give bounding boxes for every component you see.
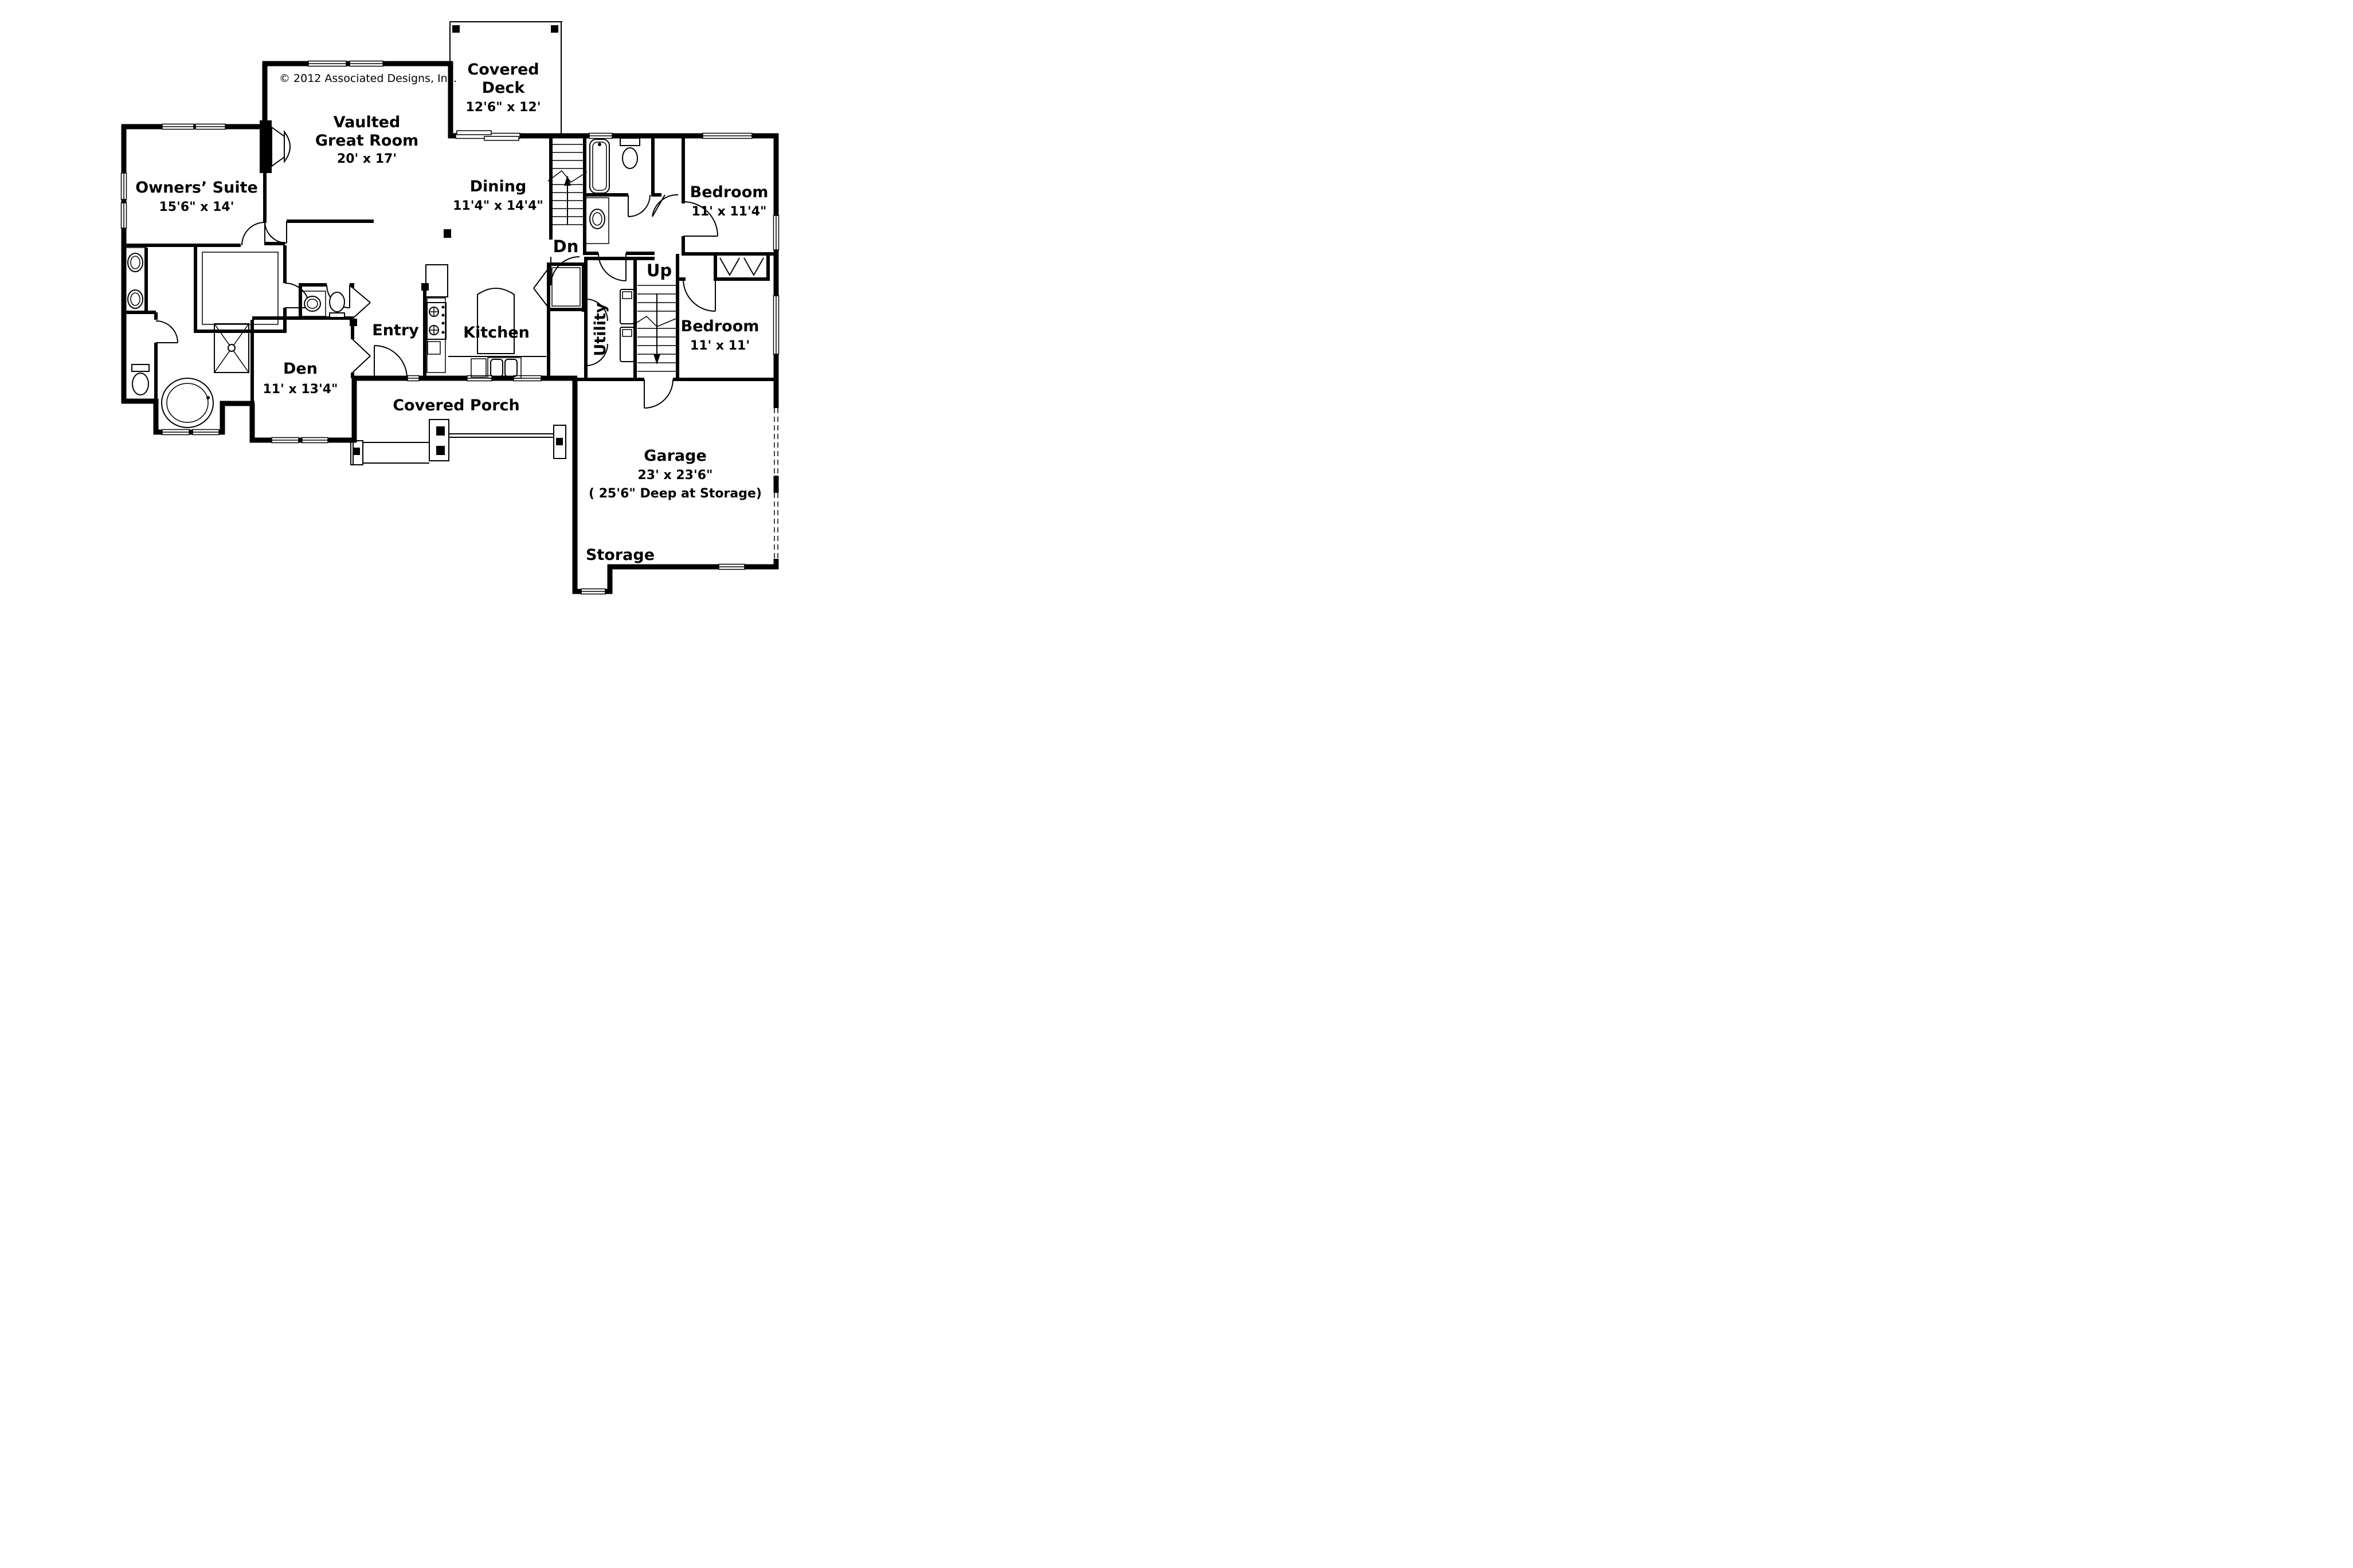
bedroom1-dims: 11' x 11'4": [692, 205, 767, 219]
window: [193, 430, 219, 435]
exterior-walls: [122, 61, 778, 594]
garage-note: ( 25'6" Deep at Storage): [589, 487, 762, 501]
toilet-icon: [620, 138, 640, 168]
stairs-up: [634, 285, 679, 371]
window: [350, 61, 383, 66]
walkin-closet: [202, 252, 278, 324]
window: [272, 438, 299, 443]
deck-dims: 12'6" x 12': [466, 100, 541, 115]
owners-suite-label: Owners’ Suite: [135, 179, 258, 197]
kitchen-label: Kitchen: [463, 324, 530, 342]
great-room-label-line1: Vaulted: [334, 113, 401, 131]
deck-post: [551, 25, 558, 33]
garage-dims: 23' x 23'6": [638, 468, 713, 483]
wall-stub: [350, 319, 357, 326]
deck-label-line1: Covered: [467, 61, 539, 79]
great-room-dims: 20' x 17': [337, 152, 397, 166]
washer-icon: [620, 289, 634, 324]
deck-label-line2: Deck: [482, 79, 526, 97]
bedroom2-dims: 11' x 11': [690, 339, 750, 353]
window: [774, 296, 779, 354]
bedroom1-label: Bedroom: [690, 183, 769, 201]
window: [703, 134, 752, 139]
den-dims: 11' x 13'4": [263, 382, 338, 397]
sink-icon: [128, 290, 143, 308]
windows: [122, 61, 779, 594]
copyright-text: © 2012 Associated Designs, Inc.: [279, 72, 457, 85]
entry-closet-doors: [353, 339, 370, 373]
window: [162, 124, 194, 130]
storage-label: Storage: [586, 546, 655, 564]
kitchen-island: [477, 288, 514, 354]
refrigerator-icon: [426, 265, 448, 297]
bath-inner-door: [628, 195, 650, 217]
sink-icon: [304, 296, 320, 311]
garage-label: Garage: [644, 447, 707, 465]
toilet-room-door: [156, 321, 178, 343]
sink-icon: [590, 209, 605, 229]
window: [302, 438, 328, 443]
dryer-icon: [620, 327, 634, 362]
porch: [351, 381, 566, 465]
floor-plan: © 2012 Associated Designs, Inc. Covered …: [0, 0, 899, 599]
dining-label: Dining: [470, 178, 527, 195]
den-double-doors: [353, 288, 370, 319]
window: [581, 589, 605, 594]
window: [774, 215, 779, 250]
post: [444, 229, 451, 238]
den-label: Den: [283, 360, 318, 378]
window: [122, 203, 127, 228]
bedroom2-label: Bedroom: [681, 317, 759, 335]
entry-label: Entry: [372, 322, 419, 339]
toilet-icon: [132, 364, 149, 395]
great-room-door: [265, 221, 287, 243]
bathtub-icon: [590, 139, 609, 193]
bedroom1-closet-door: [652, 195, 678, 217]
floor-plan-drawing: © 2012 Associated Designs, Inc. Covered …: [0, 0, 899, 599]
bathtub-icon: [162, 378, 213, 428]
window: [162, 430, 189, 435]
window: [719, 565, 745, 570]
toilet-icon: [330, 292, 344, 317]
deck-post: [452, 25, 460, 33]
covered-porch-label: Covered Porch: [393, 397, 520, 414]
utility-room: [620, 289, 634, 362]
sink-icon: [128, 253, 143, 272]
hall-door: [551, 257, 580, 285]
hall-bath: [586, 138, 640, 244]
front-door: [374, 346, 407, 378]
pantry-doors: [534, 268, 549, 308]
owners-suite-door: [242, 222, 265, 245]
dining-dims: 11'4" x 14'4": [453, 199, 543, 213]
closet-rod-icons: [720, 258, 764, 275]
window: [408, 376, 419, 381]
great-room-label-line2: Great Room: [315, 132, 418, 150]
owners-suite-dims: 15'6" x 14': [159, 200, 234, 214]
stairs-down-label: Dn: [553, 237, 579, 256]
stairs-down: [548, 144, 587, 225]
kitchen-fixtures: [426, 265, 546, 378]
bedroom2-door: [683, 279, 715, 311]
window: [122, 173, 127, 199]
porch-post: [554, 425, 566, 458]
utility-label: Utility: [592, 303, 609, 356]
double-sink-icon: [488, 358, 521, 378]
dishwasher-icon: [471, 359, 486, 377]
window: [589, 134, 612, 139]
pantry: [552, 268, 580, 306]
range-icon: [427, 303, 446, 354]
stairs-up-label: Up: [647, 261, 672, 280]
garage-entry-door: [644, 379, 673, 408]
wall-stub: [421, 283, 429, 291]
window: [308, 61, 346, 66]
fireplace-icon: [260, 120, 290, 173]
window: [195, 124, 225, 130]
porch-post: [429, 420, 449, 461]
deck-sliding-door: [456, 131, 520, 140]
